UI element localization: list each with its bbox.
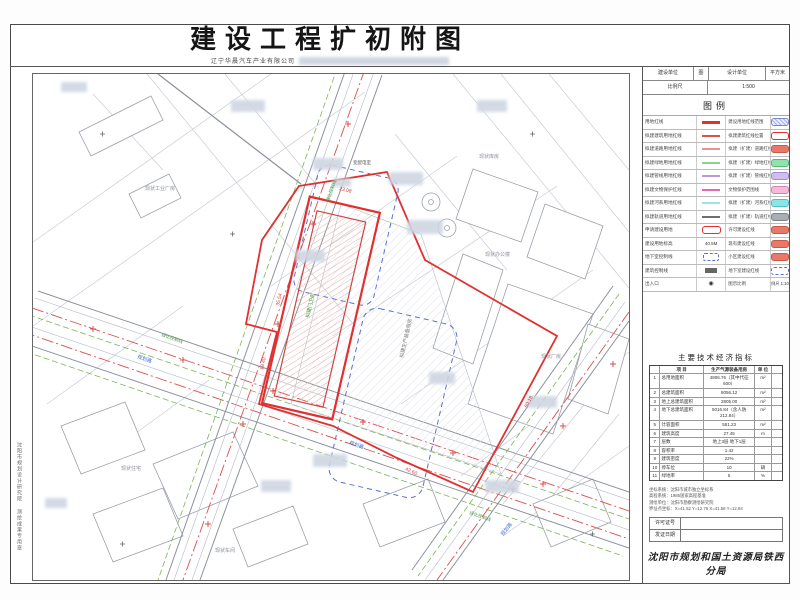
indicator-cell: 建筑密度 bbox=[660, 455, 703, 463]
redaction-blur bbox=[407, 220, 443, 234]
indicator-cell: 6 bbox=[650, 430, 660, 438]
redaction-blur bbox=[485, 480, 519, 493]
indicator-cell: 9 bbox=[650, 455, 660, 463]
map-label: 现状车间 bbox=[215, 547, 235, 554]
indicator-cell: 3 bbox=[650, 398, 660, 406]
legend-symbol-cell bbox=[697, 251, 726, 264]
legend-right-label: 文物保护范围线 bbox=[726, 184, 771, 197]
titleblock-cell: 平方米 bbox=[766, 67, 789, 80]
titleblock-row-2: 比例尺 1:500 bbox=[643, 81, 789, 95]
legend-symbol-sample bbox=[702, 148, 720, 150]
legend-swatch-cell bbox=[771, 157, 789, 170]
legend-row: 拟建道路用地红线拟建（扩建）道路红线 bbox=[643, 143, 789, 157]
indicator-cell: 2805.00 bbox=[704, 398, 756, 406]
issuing-authority: 沈阳市规划和国土资源局铁西分局 bbox=[643, 549, 789, 577]
legend-left-label: 拟建管线用地红线 bbox=[643, 170, 697, 183]
margin-line-2: 测绘成果专用章 bbox=[16, 509, 22, 551]
indicator-cell bbox=[772, 406, 782, 420]
legend-swatch-sample: 比例尺 1:1000 bbox=[771, 281, 789, 287]
legend-symbol-sample bbox=[702, 135, 720, 137]
indicator-cell: 辆 bbox=[755, 464, 771, 472]
indicator-cell: 4806.76（其中代征 600） bbox=[704, 374, 756, 388]
map-label: 现状住宅 bbox=[121, 465, 141, 472]
map-label: 变配电室 bbox=[353, 159, 371, 166]
legend-swatch-sample bbox=[771, 186, 789, 194]
indicator-cell bbox=[772, 389, 782, 397]
legend-row: 用地红线建设用地红线范围 bbox=[643, 116, 789, 130]
legend-row: 申请建设用地许可建设红线 bbox=[643, 224, 789, 238]
info-panel: 建设单位 图 设计单位 平方米 比例尺 1:500 图例 用地红线建设用地红线范… bbox=[642, 66, 790, 584]
indicator-cell: 4 bbox=[650, 406, 660, 420]
legend-left-label: 拟建轨道用地红线 bbox=[643, 211, 697, 224]
indicator-row: 4地下总建筑面积5016.84（含人防 212.84）m² bbox=[650, 406, 782, 421]
legend-symbol-sample bbox=[702, 189, 720, 191]
legend-swatch-sample bbox=[771, 213, 789, 221]
indicator-cell: 层数 bbox=[660, 438, 703, 446]
indicator-cell bbox=[755, 447, 771, 455]
legend-symbol-cell bbox=[697, 211, 726, 224]
indicator-cell: 容积率 bbox=[660, 447, 703, 455]
indicator-row: 11绿地率5% bbox=[650, 472, 782, 480]
legend-symbol-sample bbox=[702, 202, 720, 204]
legend-right-label: 拟建（扩建）河系红线 bbox=[726, 197, 771, 210]
legend-right-label: 地下室建设红线 bbox=[726, 265, 771, 278]
redaction-blur bbox=[261, 480, 291, 492]
legend-symbol-cell bbox=[697, 143, 726, 156]
page-title: 建设工程扩初附图 bbox=[30, 25, 630, 55]
indicator-cell: 22% bbox=[704, 455, 756, 463]
indicator-cell: 地上总建筑面积 bbox=[660, 398, 703, 406]
indicator-cell: 绿地率 bbox=[660, 472, 703, 480]
indicator-cell: 5 bbox=[704, 472, 756, 480]
legend-swatch-sample bbox=[771, 118, 789, 126]
map-label: 现状工业厂房 bbox=[145, 185, 175, 192]
indicator-cell: 27.45 bbox=[704, 430, 756, 438]
map-label: 23.08 bbox=[339, 186, 353, 195]
indicator-cell: m² bbox=[755, 398, 771, 406]
title-area: 建设工程扩初附图 bbox=[30, 25, 630, 55]
indicator-row: 6建筑高度27.45m bbox=[650, 430, 782, 439]
map-label: 35.54 bbox=[275, 293, 284, 307]
legend-row: 拟建轨道用地红线拟建（扩建）轨道红线 bbox=[643, 211, 789, 225]
legend-left-label: 出入口 bbox=[643, 278, 697, 291]
indicator-cell bbox=[772, 438, 782, 446]
fence-line bbox=[158, 74, 301, 184]
legend-row: 建设用地标高40.5M现有建设红线 bbox=[643, 238, 789, 252]
map-label: 现状厂房 bbox=[541, 353, 561, 360]
indicator-cell: 总建筑面积 bbox=[660, 389, 703, 397]
legend-symbol-sample bbox=[705, 268, 717, 273]
legend-left-label: 拟建文物保护红线 bbox=[643, 184, 697, 197]
indicator-cell: m² bbox=[755, 406, 771, 420]
ind-h-n bbox=[650, 366, 660, 374]
legend-swatch-cell bbox=[771, 170, 789, 183]
legend-swatch-sample bbox=[771, 240, 789, 248]
legend-row: 地下室控制线小区建设红线 bbox=[643, 251, 789, 265]
legend-symbol-cell bbox=[697, 157, 726, 170]
indicator-cell: 551.23 bbox=[704, 421, 756, 429]
indicator-cell: m² bbox=[755, 389, 771, 397]
indicator-cell: 计容面积 bbox=[660, 421, 703, 429]
legend-left-label: 用地红线 bbox=[643, 116, 697, 129]
indicator-cell bbox=[772, 374, 782, 388]
indicator-row: 5计容面积551.23m² bbox=[650, 421, 782, 430]
legend-left-label: 拟建绿地用地红线 bbox=[643, 157, 697, 170]
redaction-blur bbox=[45, 498, 67, 508]
legend-swatch-cell bbox=[771, 130, 789, 143]
legend-symbol-cell: ◉ bbox=[697, 278, 726, 291]
indicator-cell: 10 bbox=[704, 464, 756, 472]
site-plan-map: 35.5423.0860.1842.6018.40拟建门卫房拟建生产装备用房变配… bbox=[33, 74, 629, 580]
legend-swatch-sample bbox=[771, 267, 789, 275]
legend-swatch-cell bbox=[771, 116, 789, 129]
legend-symbol-sample bbox=[703, 253, 719, 261]
indicator-row: 8容积率1.42 bbox=[650, 447, 782, 456]
indicator-cell: 5016.84（含人防 212.84） bbox=[704, 406, 756, 420]
titleblock-row-1: 建设单位 图 设计单位 平方米 bbox=[643, 67, 789, 81]
indicator-cell: 停车位 bbox=[660, 464, 703, 472]
legend-rows: 用地红线建设用地红线范围拟建建筑用地红线拟建建筑红线位置拟建道路用地红线拟建（扩… bbox=[643, 116, 789, 292]
map-area: 35.5423.0860.1842.6018.40拟建门卫房拟建生产装备用房变配… bbox=[32, 73, 630, 581]
legend-right-label: 图示比例 bbox=[726, 278, 771, 291]
legend-left-label: 建筑控制线 bbox=[643, 265, 697, 278]
issue-date-label: 发证日期 bbox=[650, 530, 681, 541]
subtitle-area: 辽宁华晨汽车产业有限公司 bbox=[30, 56, 630, 65]
legend-right-label: 建设用地红线范围 bbox=[726, 116, 771, 129]
indicators-title: 主要技术经济指标 bbox=[643, 352, 789, 363]
legend-swatch-sample bbox=[771, 159, 789, 167]
indicator-cell: 2 bbox=[650, 389, 660, 397]
legend-right-label: 拟建（扩建）管线红线 bbox=[726, 170, 771, 183]
legend-swatch-sample bbox=[771, 132, 789, 140]
legend-symbol-cell bbox=[697, 197, 726, 210]
indicator-cell: m bbox=[755, 430, 771, 438]
scale-label: 比例尺 bbox=[643, 81, 708, 94]
legend-right-label: 小区建设红线 bbox=[726, 251, 771, 264]
legend-swatch-cell bbox=[771, 211, 789, 224]
legend-swatch-sample bbox=[771, 172, 789, 180]
subtitle-redaction bbox=[299, 57, 449, 65]
legend-swatch-sample bbox=[771, 253, 789, 261]
indicator-cell: 8 bbox=[650, 447, 660, 455]
legend-symbol-cell bbox=[697, 184, 726, 197]
indicator-cell: 10 bbox=[650, 464, 660, 472]
indicator-cell: 建筑高度 bbox=[660, 430, 703, 438]
indicator-cell: 总用地面积 bbox=[660, 374, 703, 388]
legend-symbol-cell bbox=[697, 116, 726, 129]
legend-row: 出入口◉图示比例比例尺 1:1000 bbox=[643, 278, 789, 292]
titleblock-cell: 图 bbox=[694, 67, 709, 80]
indicator-cell bbox=[772, 464, 782, 472]
margin-line-1: 沈阳市规划设计研究院 bbox=[16, 442, 22, 502]
indicator-row: 3地上总建筑面积2805.00m² bbox=[650, 398, 782, 407]
indicator-row: 9建筑密度22% bbox=[650, 455, 782, 464]
indicators-header: 项 目 生产气源装备用房 单 位 bbox=[650, 366, 782, 375]
map-label: 规划路 bbox=[499, 521, 514, 537]
indicator-cell: m² bbox=[755, 374, 771, 388]
legend-swatch-cell: 比例尺 1:1000 bbox=[771, 278, 789, 291]
legend-row: 拟建建筑用地红线拟建建筑红线位置 bbox=[643, 130, 789, 144]
legend-right-label: 许可建设红线 bbox=[726, 224, 771, 237]
legend-right-label: 拟建建筑红线位置 bbox=[726, 130, 771, 143]
legend-row: 拟建绿地用地红线拟建（扩建）绿地红线 bbox=[643, 157, 789, 171]
legend-symbol-cell: 40.5M bbox=[697, 238, 726, 251]
permit-number-row: 许可证号 bbox=[649, 517, 783, 529]
legend-swatch-sample bbox=[771, 226, 789, 234]
legend-symbol-sample: ◉ bbox=[708, 281, 713, 287]
indicator-cell: 地上3层 地下1层 bbox=[704, 438, 756, 446]
redaction-blur bbox=[477, 100, 507, 112]
legend-left-label: 申请建设用地 bbox=[643, 224, 697, 237]
indicator-cell bbox=[772, 447, 782, 455]
legend-symbol-sample: 40.5M bbox=[705, 241, 718, 246]
permit-number-label: 许可证号 bbox=[650, 518, 681, 529]
legend-symbol-sample bbox=[702, 162, 720, 164]
indicator-cell: 1 bbox=[650, 374, 660, 388]
legend-left-label: 地下室控制线 bbox=[643, 251, 697, 264]
redaction-blur bbox=[389, 172, 423, 185]
legend-right-label: 拟建（扩建）绿地红线 bbox=[726, 157, 771, 170]
titleblock-cell: 建设单位 bbox=[643, 67, 694, 80]
ind-h-x bbox=[772, 366, 782, 374]
legend-row: 拟建河系用地红线拟建（扩建）河系红线 bbox=[643, 197, 789, 211]
legend-symbol-sample bbox=[702, 216, 720, 218]
legend-symbol-sample bbox=[702, 226, 721, 234]
indicator-cell: 1.42 bbox=[704, 447, 756, 455]
legend-heading: 图例 bbox=[643, 95, 789, 116]
indicator-cell: m² bbox=[755, 421, 771, 429]
legend-symbol-sample bbox=[702, 175, 720, 177]
legend-symbol-cell bbox=[697, 224, 726, 237]
map-label: 42.60 bbox=[404, 466, 418, 477]
redaction-blur bbox=[313, 454, 347, 467]
legend-swatch-sample bbox=[771, 199, 789, 207]
issue-date-value bbox=[681, 530, 782, 541]
indicator-cell: 地下总建筑面积 bbox=[660, 406, 703, 420]
indicator-row: 10停车位10辆 bbox=[650, 464, 782, 473]
legend-symbol-cell bbox=[697, 130, 726, 143]
legend-row: 拟建文物保护红线文物保护范围线 bbox=[643, 184, 789, 198]
map-label: 现状库房 bbox=[479, 153, 499, 160]
redaction-blur bbox=[61, 82, 87, 92]
titleblock-cell: 设计单位 bbox=[709, 67, 766, 80]
drawing-sheet: { "title": { "main": "建设工程扩初附图", "subtit… bbox=[0, 0, 800, 600]
legend-swatch-cell bbox=[771, 238, 789, 251]
legend-swatch-cell bbox=[771, 184, 789, 197]
legend-left-label: 拟建道路用地红线 bbox=[643, 143, 697, 156]
indicator-cell bbox=[772, 421, 782, 429]
redaction-blur bbox=[231, 100, 265, 112]
indicator-cell: 7 bbox=[650, 438, 660, 446]
legend-right-label: 拟建（扩建）轨道红线 bbox=[726, 211, 771, 224]
notes-block: 坐标系统：沈阳市城市独立坐标系 高程系统：1985国家高程基准 测绘单位：沈阳市… bbox=[649, 487, 783, 513]
map-label: 现状办公楼 bbox=[485, 251, 510, 258]
indicator-cell bbox=[755, 438, 771, 446]
indicator-cell bbox=[772, 430, 782, 438]
indicator-cell: 11 bbox=[650, 472, 660, 480]
indicator-cell bbox=[772, 398, 782, 406]
indicator-cell bbox=[772, 472, 782, 480]
legend-left-label: 拟建河系用地红线 bbox=[643, 197, 697, 210]
redaction-blur bbox=[313, 158, 343, 170]
legend-symbol-cell bbox=[697, 265, 726, 278]
indicator-cell bbox=[772, 455, 782, 463]
legend-swatch-cell bbox=[771, 197, 789, 210]
page-subtitle: 辽宁华晨汽车产业有限公司 bbox=[211, 59, 295, 65]
legend-left-label: 建设用地标高 bbox=[643, 238, 697, 251]
legend-swatch-sample bbox=[771, 145, 789, 153]
scale-value: 1:500 bbox=[708, 81, 789, 94]
ind-h-value: 生产气源装备用房 bbox=[704, 366, 756, 374]
map-label: 绿化控制线 bbox=[160, 331, 184, 345]
indicator-row: 2总建筑面积8056.12m² bbox=[650, 389, 782, 398]
legend-left-label: 拟建建筑用地红线 bbox=[643, 130, 697, 143]
issue-date-row: 发证日期 bbox=[649, 529, 783, 542]
legend-swatch-cell bbox=[771, 265, 789, 278]
legend-right-label: 现有建设红线 bbox=[726, 238, 771, 251]
indicator-cell bbox=[755, 455, 771, 463]
legend-right-label: 拟建（扩建）道路红线 bbox=[726, 143, 771, 156]
legend-swatch-cell bbox=[771, 143, 789, 156]
redaction-blur bbox=[429, 372, 455, 384]
ind-h-name: 项 目 bbox=[660, 366, 703, 374]
indicator-row: 1总用地面积4806.76（其中代征 600）m² bbox=[650, 374, 782, 389]
legend-swatch-cell bbox=[771, 251, 789, 264]
legend-swatch-cell bbox=[771, 224, 789, 237]
legend-row: 拟建管线用地红线拟建（扩建）管线红线 bbox=[643, 170, 789, 184]
permit-number-value bbox=[681, 518, 782, 529]
margin-stamp-text: 沈阳市规划设计研究院 测绘成果专用章 bbox=[15, 442, 22, 577]
indicator-row: 7层数地上3层 地下1层 bbox=[650, 438, 782, 447]
indicator-cell: 8056.12 bbox=[704, 389, 756, 397]
map-label: 绿化控制线 bbox=[468, 509, 492, 523]
redaction-blur bbox=[295, 250, 325, 262]
indicator-cell: % bbox=[755, 472, 771, 480]
legend-symbol-sample bbox=[702, 121, 720, 124]
legend-symbol-cell bbox=[697, 170, 726, 183]
indicator-cell: 5 bbox=[650, 421, 660, 429]
indicators-table: 项 目 生产气源装备用房 单 位 1总用地面积4806.76（其中代征 600）… bbox=[649, 365, 783, 481]
ind-h-unit: 单 位 bbox=[755, 366, 771, 374]
legend-row: 建筑控制线地下室建设红线 bbox=[643, 265, 789, 279]
